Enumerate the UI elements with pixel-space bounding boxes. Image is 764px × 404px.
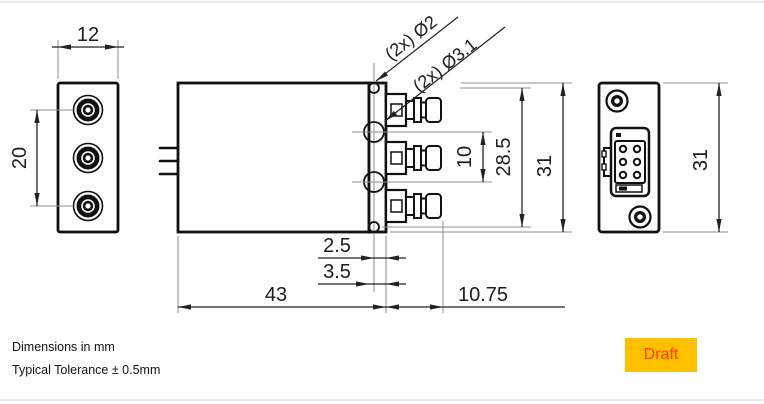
dimension-hole-face-offset: 2.5 — [318, 235, 406, 261]
dim-label-front-width: 12 — [77, 24, 99, 46]
side-coax-plug-2 — [386, 142, 441, 174]
screw-center — [637, 214, 642, 219]
arrowhead — [716, 83, 721, 96]
dim-label-side-height: 31 — [534, 155, 556, 177]
dim-label-rear-height: 31 — [690, 149, 712, 171]
rear-screw-top — [607, 91, 628, 112]
rear-view — [599, 83, 659, 232]
draft-badge-label: Draft — [644, 346, 679, 364]
plug-insert — [391, 152, 402, 164]
connector-pin — [634, 146, 640, 152]
plug-tip — [426, 194, 441, 218]
jack-center-hole — [85, 155, 90, 160]
connector-keying-mark — [616, 133, 621, 137]
jack-center-hole — [85, 107, 90, 112]
screw-center — [614, 98, 619, 103]
arrowhead — [178, 304, 191, 309]
arrowhead — [34, 110, 39, 123]
arrowhead — [58, 44, 71, 49]
arrowhead — [519, 88, 524, 101]
arrowhead — [716, 219, 721, 232]
side-coax-plug-3 — [386, 190, 441, 222]
arrowhead — [386, 304, 399, 309]
arrowhead — [356, 281, 369, 286]
front-coax-jack-2 — [74, 144, 103, 173]
connector-pin — [620, 146, 626, 152]
draft-status-badge: Draft — [625, 338, 697, 372]
arrowhead — [560, 83, 565, 96]
plug-tip — [426, 98, 441, 122]
dim-label-flange-thickness: 3.5 — [323, 261, 351, 283]
arrowhead — [519, 214, 524, 227]
plug-tip — [426, 146, 441, 170]
plug-insert — [391, 200, 402, 212]
arrowhead — [373, 304, 386, 309]
rear-screw-bottom — [630, 207, 651, 228]
arrowhead — [430, 304, 443, 309]
front-coax-jack-3 — [74, 192, 103, 221]
dim-label-protrusion: 10.75 — [458, 284, 508, 306]
dim-label-rf-pitch: 10 — [454, 146, 476, 168]
dimension-body-length: 43 — [178, 284, 386, 310]
dim-label-pilot-pitch: 28.5 — [493, 138, 515, 177]
plug-neck — [406, 149, 414, 167]
arrowhead — [480, 169, 485, 182]
note-units: Dimensions in mm — [12, 340, 115, 354]
dimension-flange-thickness: 3.5 — [318, 261, 406, 287]
connector-bottom-key — [619, 187, 627, 191]
arrowhead — [560, 219, 565, 232]
technical-drawing: 12 20 — [0, 0, 764, 404]
dimension-connector-protrusion: 10.75 — [386, 284, 565, 310]
front-view — [58, 83, 118, 232]
dim-label-hole-offset: 2.5 — [323, 235, 351, 257]
arrowhead — [480, 132, 485, 145]
flange-outline — [369, 83, 386, 232]
connector-pin — [634, 172, 640, 178]
arrowhead — [361, 255, 374, 260]
dimension-rear-height: 31 — [663, 83, 728, 232]
plug-ring — [414, 194, 421, 218]
jack-center-hole — [85, 203, 90, 208]
connector-pin — [620, 159, 626, 165]
dim-label-body-length: 43 — [265, 284, 287, 306]
arrowhead — [105, 44, 118, 49]
arrowhead — [386, 255, 399, 260]
connector-tab-tooth — [602, 151, 606, 157]
arrowhead — [34, 193, 39, 206]
front-coax-jack-1 — [74, 96, 103, 125]
arrowhead — [386, 281, 399, 286]
connector-pin — [634, 159, 640, 165]
body-outline — [178, 83, 369, 232]
plug-ring — [414, 146, 421, 170]
connector-tab-tooth — [602, 164, 606, 170]
connector-pin — [620, 172, 626, 178]
note-tolerance: Typical Tolerance ± 0.5mm — [12, 363, 160, 377]
plug-ring — [414, 98, 421, 122]
plug-neck — [406, 197, 414, 215]
dimension-front-width: 12 — [52, 24, 124, 79]
dim-label-front-pitch: 20 — [9, 147, 31, 169]
